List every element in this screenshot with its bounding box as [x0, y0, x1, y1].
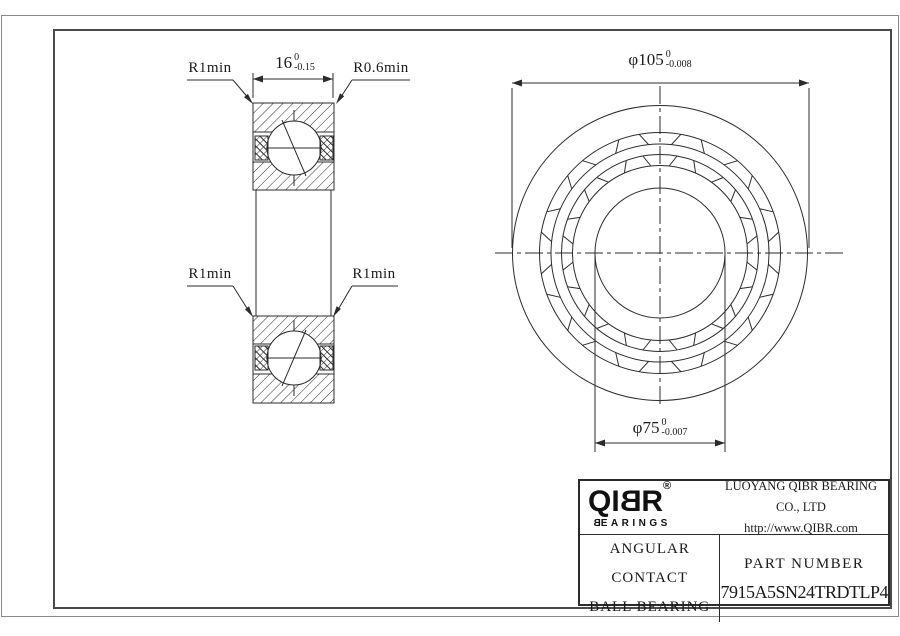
title-block-header-row: QIBR® BEARINGS LUOYANG QIBR BEARING CO.,… — [580, 481, 888, 535]
dim-text-bore-diameter: φ750-0.007 — [610, 419, 710, 439]
logo-wordmark: QIBR® — [588, 487, 718, 517]
dim-bore-tol-lower: -0.007 — [661, 428, 687, 438]
label-r1-bottom-left: R1min — [186, 266, 234, 283]
logo-text-start: QI — [588, 485, 620, 518]
label-r06-top-right: R0.6min — [350, 60, 412, 77]
dim-width-value: 16 — [275, 54, 292, 71]
dim-text-outer-diameter: φ1050-0.008 — [600, 51, 720, 71]
company-info: LUOYANG QIBR BEARING CO., LTD http://www… — [718, 476, 888, 539]
dim-width-tol-lower: -0.15 — [294, 63, 315, 73]
dim-od-tol-lower: -0.008 — [666, 60, 692, 70]
title-block-detail-row: ANGULAR CONTACT BALL BEARING PART NUMBER… — [580, 535, 888, 622]
title-block: QIBR® BEARINGS LUOYANG QIBR BEARING CO.,… — [578, 479, 890, 606]
logo-text-mirrored-b: B — [620, 487, 642, 517]
engineering-drawing: { "drawing": { "labels": { "r1_top_left"… — [0, 0, 900, 636]
dim-bore-value: φ75 — [633, 419, 660, 436]
dim-text-width: 160-0.15 — [255, 54, 335, 74]
logo-subtext: BEARINGS — [590, 519, 718, 529]
product-name-line2: BALL BEARING — [580, 593, 719, 622]
product-name-line1: ANGULAR CONTACT — [580, 535, 719, 593]
label-r1-bottom-right: R1min — [350, 266, 398, 283]
part-number-value: 7915A5SN24TRDTLP4 — [720, 577, 888, 607]
logo-text-end: R — [641, 485, 663, 518]
part-number-label: PART NUMBER — [720, 551, 888, 577]
logo-sub-mirrored-b: B — [590, 519, 601, 529]
part-number-cell: PART NUMBER 7915A5SN24TRDTLP4 — [720, 535, 888, 622]
registered-trademark-symbol: ® — [663, 480, 671, 492]
dim-od-value: φ105 — [628, 51, 663, 68]
logo-sub-end: EARINGS — [601, 518, 671, 529]
company-name: LUOYANG QIBR BEARING CO., LTD — [718, 476, 884, 518]
product-description-cell: ANGULAR CONTACT BALL BEARING — [580, 535, 720, 622]
label-r1-top-left: R1min — [186, 60, 234, 77]
company-logo: QIBR® BEARINGS — [580, 487, 718, 529]
